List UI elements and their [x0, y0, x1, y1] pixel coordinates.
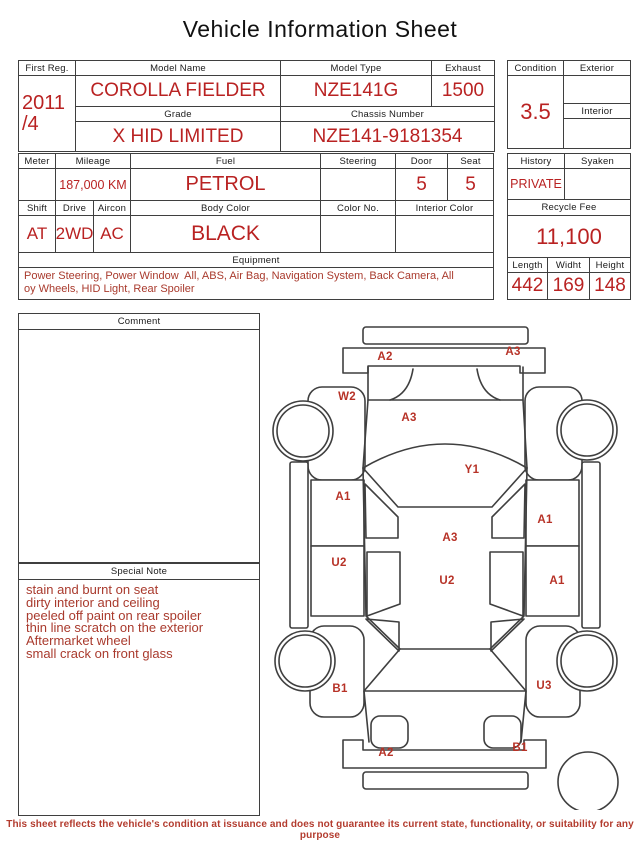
height-header: Height	[590, 258, 630, 272]
chassis-number-value: NZE141-9181354	[281, 122, 494, 151]
left-front-window-shape	[365, 484, 398, 538]
front-right-wheel	[557, 400, 617, 460]
interior-color-header: Interior Color	[396, 201, 493, 215]
trunk-left-edge	[364, 691, 369, 742]
interior-header: Interior	[564, 104, 630, 118]
interior-value	[564, 119, 630, 148]
syaken-header: Syaken	[565, 154, 630, 168]
right-c-pillar-shape	[491, 619, 524, 651]
model-name-header: Model Name	[76, 61, 280, 75]
fuel-header: Fuel	[131, 154, 320, 168]
rear-glass-shape	[364, 649, 526, 691]
equipment-header: Equipment	[19, 253, 493, 267]
drive-value: 2WD	[56, 216, 93, 252]
right-front-window-shape	[492, 484, 525, 538]
steering-value	[321, 169, 395, 200]
door-value: 5	[396, 169, 447, 200]
aircon-header: Aircon	[94, 201, 130, 215]
interior-color-value	[396, 216, 493, 252]
right-front-door-shape	[526, 480, 579, 546]
width-header: Widht	[548, 258, 589, 272]
special-note-box: Special Note stain and burnt on seat dir…	[18, 563, 260, 816]
rear-left-wheel	[275, 631, 335, 691]
special-note-body: stain and burnt on seat dirty interior a…	[19, 580, 259, 661]
width-value: 169	[548, 273, 589, 299]
length-header: Length	[508, 258, 547, 272]
first-reg-header: First Reg.	[19, 61, 75, 75]
front-left-wheel	[273, 401, 333, 461]
right-sill-shape	[582, 462, 600, 628]
spec-table: Meter Mileage Fuel Steering Door Seat 18…	[18, 153, 494, 300]
height-value: 148	[590, 273, 630, 299]
color-no-value	[321, 216, 395, 252]
right-rear-door-shape	[526, 546, 579, 616]
model-name-value: COROLLA FIELDER	[76, 76, 280, 106]
disclaimer-text: This sheet reflects the vehicle's condit…	[0, 819, 640, 841]
rear-tail-bar-shape	[363, 772, 528, 789]
front-bumper-shape	[343, 348, 545, 373]
special-note-line: small crack on front glass	[26, 648, 257, 661]
left-wiper-arc	[390, 369, 413, 400]
mileage-header: Mileage	[56, 154, 130, 168]
left-sill-shape	[290, 462, 308, 628]
aircon-value: AC	[94, 216, 130, 252]
exhaust-header: Exhaust	[432, 61, 494, 75]
left-taillight-shape	[371, 716, 408, 748]
syaken-value	[565, 169, 630, 199]
condition-value: 3.5	[508, 76, 563, 148]
model-type-header: Model Type	[281, 61, 431, 75]
door-header: Door	[396, 154, 447, 168]
spare-wheel	[558, 752, 618, 810]
left-rear-window-shape	[367, 552, 400, 616]
meter-value	[19, 169, 55, 200]
condition-header: Condition	[508, 61, 563, 75]
length-value: 442	[508, 273, 547, 299]
shift-value: AT	[19, 216, 55, 252]
mileage-value: 187,000 KM	[56, 169, 130, 200]
comment-header: Comment	[19, 314, 259, 330]
history-header: History	[508, 154, 564, 168]
identity-table: First Reg. Model Name Model Type Exhaust…	[18, 60, 495, 152]
right-wiper-arc	[477, 369, 500, 400]
front-nose-bar-shape	[363, 327, 528, 344]
fuel-value: PETROL	[131, 169, 320, 200]
body-color-value: BLACK	[131, 216, 320, 252]
cowl-shape	[368, 367, 523, 400]
color-no-header: Color No.	[321, 201, 395, 215]
grade-value: X HID LIMITED	[76, 122, 280, 151]
grade-header: Grade	[76, 107, 280, 121]
car-damage-diagram	[265, 315, 640, 810]
right-taillight-shape	[484, 716, 521, 748]
seat-header: Seat	[448, 154, 493, 168]
comment-box: Comment	[18, 313, 260, 563]
exhaust-value: 1500	[432, 76, 494, 106]
rear-right-wheel	[557, 631, 617, 691]
exterior-header: Exterior	[564, 61, 630, 75]
windshield-shape	[363, 444, 527, 507]
history-box: History Syaken PRIVATE Recycle Fee 11,10…	[507, 153, 631, 300]
recycle-fee-value: 11,100	[508, 216, 630, 257]
equipment-value: Power Steering, Power Window All, ABS, A…	[19, 268, 493, 299]
page-title: Vehicle Information Sheet	[0, 16, 640, 43]
left-rear-door-shape	[311, 546, 364, 616]
condition-box: Condition Exterior 3.5 Interior	[507, 60, 631, 149]
left-c-pillar-shape	[366, 619, 399, 651]
seat-value: 5	[448, 169, 493, 200]
model-type-value: NZE141G	[281, 76, 431, 106]
right-rear-window-shape	[490, 552, 523, 616]
exterior-value	[564, 76, 630, 103]
drive-header: Drive	[56, 201, 93, 215]
body-color-header: Body Color	[131, 201, 320, 215]
steering-header: Steering	[321, 154, 395, 168]
special-note-header: Special Note	[19, 564, 259, 580]
recycle-fee-header: Recycle Fee	[508, 200, 630, 215]
vehicle-information-sheet: { "title": "Vehicle Information Sheet", …	[0, 0, 640, 835]
chassis-number-header: Chassis Number	[281, 107, 494, 121]
shift-header: Shift	[19, 201, 55, 215]
left-front-door-shape	[311, 480, 364, 546]
history-value: PRIVATE	[508, 169, 564, 199]
first-reg-value: 2011 /4	[19, 76, 75, 151]
meter-header: Meter	[19, 154, 55, 168]
